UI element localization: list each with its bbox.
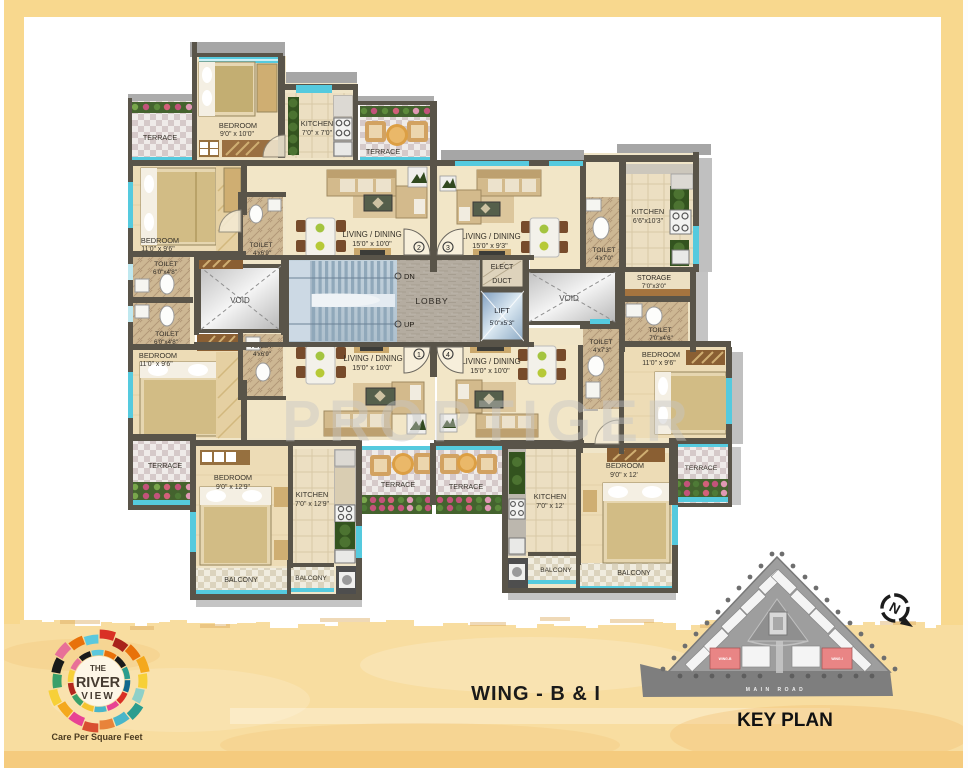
svg-text:TERRACE: TERRACE: [366, 147, 401, 156]
svg-text:LIVING / DINING: LIVING / DINING: [461, 232, 520, 241]
svg-text:TOILET: TOILET: [649, 327, 672, 334]
svg-text:BEDROOM: BEDROOM: [139, 351, 177, 360]
svg-text:BEDROOM: BEDROOM: [642, 350, 680, 359]
svg-text:BALCONY: BALCONY: [540, 567, 572, 574]
svg-text:UP: UP: [404, 320, 414, 329]
svg-text:WING - B & I: WING - B & I: [471, 683, 601, 705]
svg-text:BEDROOM: BEDROOM: [219, 121, 257, 130]
svg-text:LIVING / DINING: LIVING / DINING: [461, 357, 520, 366]
svg-text:VOID: VOID: [559, 294, 579, 303]
svg-text:4'x7'3": 4'x7'3": [593, 347, 611, 354]
svg-text:TERRACE: TERRACE: [449, 482, 484, 491]
svg-text:TERRACE: TERRACE: [148, 461, 183, 470]
svg-text:1: 1: [417, 352, 421, 359]
svg-text:15'0" x 10'0": 15'0" x 10'0": [470, 366, 510, 375]
svg-text:TERRACE: TERRACE: [143, 133, 178, 142]
svg-text:Care Per Square Feet: Care Per Square Feet: [51, 732, 142, 742]
svg-text:7'0" x 12': 7'0" x 12': [536, 503, 564, 510]
svg-text:BEDROOM: BEDROOM: [141, 236, 179, 245]
svg-text:PROPTIGER: PROPTIGER: [282, 389, 696, 454]
svg-text:4: 4: [446, 352, 450, 359]
svg-text:15'0" x 10'0": 15'0" x 10'0": [352, 363, 392, 372]
svg-text:WING-I: WING-I: [831, 657, 842, 661]
svg-text:TERRACE: TERRACE: [381, 480, 416, 489]
svg-text:STORAGE: STORAGE: [637, 275, 671, 282]
svg-text:3: 3: [446, 245, 450, 252]
svg-text:BEDROOM: BEDROOM: [214, 473, 252, 482]
svg-text:11'0" x 9'6": 11'0" x 9'6": [139, 361, 173, 368]
svg-text:DN: DN: [404, 272, 415, 281]
svg-text:4'x7'0": 4'x7'0": [595, 255, 613, 262]
svg-text:WING-B: WING-B: [719, 657, 732, 661]
svg-text:BEDROOM: BEDROOM: [606, 461, 644, 470]
svg-text:KITCHEN: KITCHEN: [534, 492, 566, 501]
svg-text:BALCONY: BALCONY: [617, 570, 651, 577]
svg-text:TOILET: TOILET: [155, 331, 179, 338]
svg-text:TOILET: TOILET: [593, 247, 616, 254]
svg-text:9'0" x 12': 9'0" x 12': [610, 472, 638, 479]
svg-text:4'x6'9": 4'x6'9": [253, 351, 271, 358]
svg-text:TOILET: TOILET: [154, 261, 178, 268]
svg-text:15'0" x 10'0": 15'0" x 10'0": [352, 239, 392, 248]
svg-text:BALCONY: BALCONY: [224, 577, 258, 584]
svg-text:ELECT: ELECT: [491, 264, 514, 271]
svg-text:KITCHEN: KITCHEN: [296, 490, 328, 499]
svg-text:LOBBY: LOBBY: [415, 296, 448, 306]
svg-text:THE: THE: [90, 664, 107, 673]
svg-text:11'0" x 9'6": 11'0" x 9'6": [642, 360, 676, 367]
svg-text:7'0" x 12'9": 7'0" x 12'9": [295, 501, 330, 508]
svg-text:6'6"x10'3": 6'6"x10'3": [633, 218, 664, 225]
svg-text:VIEW: VIEW: [81, 691, 115, 702]
svg-text:7'0" x 7'0": 7'0" x 7'0": [302, 130, 333, 137]
svg-text:VOID: VOID: [230, 296, 250, 305]
svg-text:15'0" x 9'3": 15'0" x 9'3": [472, 241, 508, 250]
svg-text:9'0" x 10'0": 9'0" x 10'0": [220, 131, 255, 138]
svg-text:5'0"x5'3": 5'0"x5'3": [490, 320, 515, 327]
svg-text:LIVING / DINING: LIVING / DINING: [342, 230, 401, 239]
svg-text:9'0" x 12'9": 9'0" x 12'9": [216, 484, 251, 491]
svg-text:RIVER: RIVER: [76, 675, 121, 691]
svg-text:LIVING / DINING: LIVING / DINING: [343, 354, 402, 363]
svg-text:TOILET: TOILET: [590, 339, 613, 346]
svg-text:7'0"x3'0": 7'0"x3'0": [642, 283, 666, 290]
svg-text:TERRACE: TERRACE: [685, 465, 718, 472]
svg-text:TOILET: TOILET: [250, 242, 273, 249]
svg-text:DUCT: DUCT: [492, 278, 512, 285]
svg-text:LIFT: LIFT: [494, 306, 510, 315]
svg-text:BALCONY: BALCONY: [295, 575, 327, 582]
svg-text:7'0"x4'6": 7'0"x4'6": [649, 335, 673, 342]
svg-text:KITCHEN: KITCHEN: [632, 207, 664, 216]
svg-text:6'0"x4'8": 6'0"x4'8": [153, 269, 177, 276]
svg-text:KEY PLAN: KEY PLAN: [737, 710, 833, 731]
svg-text:KITCHEN: KITCHEN: [301, 119, 333, 128]
svg-text:MAIN ROAD: MAIN ROAD: [746, 687, 806, 693]
svg-text:2: 2: [417, 245, 421, 252]
